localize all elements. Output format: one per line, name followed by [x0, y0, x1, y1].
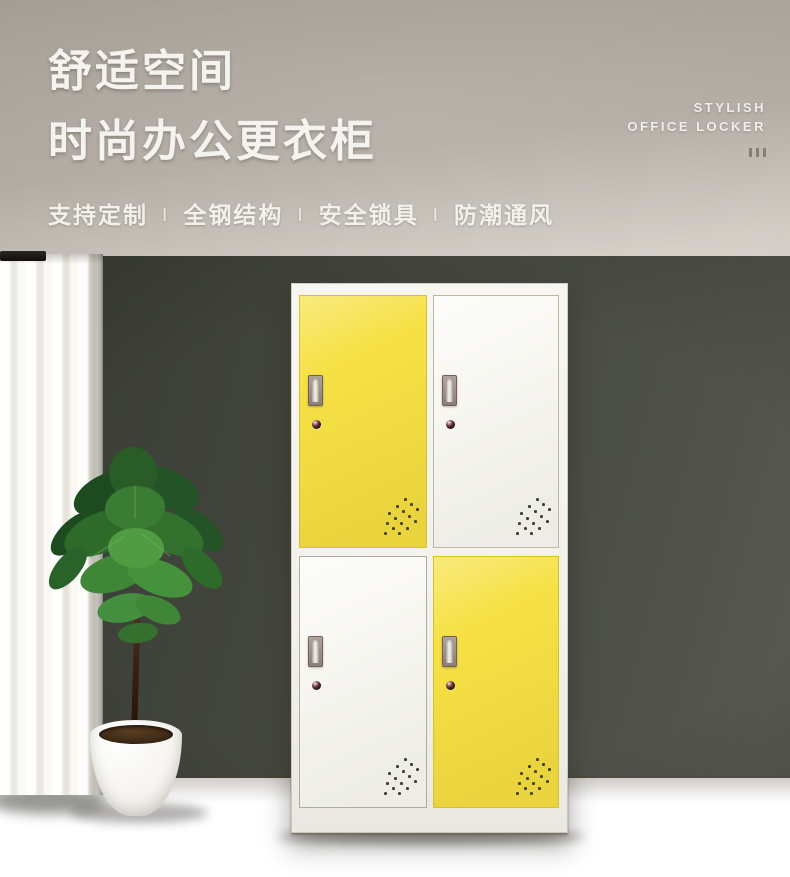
door-handle	[442, 636, 457, 667]
vent-hole	[536, 498, 539, 501]
vent-hole	[524, 527, 527, 530]
vent-hole	[542, 503, 545, 506]
door-handle	[308, 375, 323, 406]
vent-holes	[515, 498, 551, 538]
vent-hole	[406, 787, 409, 790]
vent-hole	[534, 770, 537, 773]
tagline-line2: OFFICE LOCKER	[627, 117, 766, 136]
vent-hole	[384, 532, 387, 535]
vent-hole	[530, 532, 533, 535]
vent-hole	[534, 510, 537, 513]
vent-hole	[416, 768, 419, 771]
vent-hole	[396, 505, 399, 508]
vent-holes	[383, 498, 419, 538]
vent-hole	[392, 527, 395, 530]
vent-hole	[516, 532, 519, 535]
vent-hole	[408, 775, 411, 778]
vent-hole	[406, 527, 409, 530]
vent-hole	[396, 765, 399, 768]
main-title-line2: 时尚办公更衣柜	[48, 120, 377, 164]
vent-hole	[410, 763, 413, 766]
vent-hole	[516, 792, 519, 795]
vent-hole	[398, 792, 401, 795]
vent-hole	[398, 532, 401, 535]
feature-item: 安全锁具	[319, 202, 419, 228]
vent-hole	[542, 763, 545, 766]
vent-hole	[404, 498, 407, 501]
door-lock-icon	[446, 681, 455, 690]
vent-hole	[400, 522, 403, 525]
vent-hole	[538, 527, 541, 530]
vent-hole	[538, 787, 541, 790]
vent-hole	[520, 772, 523, 775]
locker-door-bottom-right	[433, 556, 559, 808]
vent-hole	[524, 787, 527, 790]
vent-hole	[532, 782, 535, 785]
door-lock-icon	[312, 420, 321, 429]
vent-hole	[536, 758, 539, 761]
vent-hole	[540, 515, 543, 518]
locker-door-top-right	[433, 295, 559, 548]
vent-hole	[540, 775, 543, 778]
vent-hole	[546, 520, 549, 523]
vent-holes	[383, 758, 419, 798]
vent-hole	[404, 758, 407, 761]
tick-mark	[749, 148, 752, 157]
vent-hole	[386, 522, 389, 525]
tick-mark	[756, 148, 759, 157]
vent-hole	[526, 517, 529, 520]
vent-hole	[384, 792, 387, 795]
main-title-line1: 舒适空间	[48, 50, 236, 94]
vent-hole	[530, 792, 533, 795]
vent-hole	[546, 780, 549, 783]
vent-hole	[392, 787, 395, 790]
tagline-line1: STYLISH	[627, 98, 766, 117]
locker-door-top-left	[299, 295, 427, 548]
vent-hole	[528, 765, 531, 768]
feature-item: 防潮通风	[454, 202, 554, 228]
vent-hole	[402, 770, 405, 773]
feature-separator: Ⅰ	[433, 205, 440, 225]
handle-slot	[312, 379, 319, 402]
vent-hole	[386, 782, 389, 785]
handle-slot	[446, 640, 453, 663]
vent-hole	[548, 508, 551, 511]
tick-mark	[763, 148, 766, 157]
feature-item: 支持定制	[48, 202, 148, 228]
vent-holes	[515, 758, 551, 798]
vent-hole	[548, 768, 551, 771]
vent-hole	[394, 517, 397, 520]
vent-hole	[518, 782, 521, 785]
door-lock-icon	[446, 420, 455, 429]
vent-hole	[394, 777, 397, 780]
vent-hole	[526, 777, 529, 780]
vent-hole	[410, 503, 413, 506]
tick-marks	[749, 148, 766, 157]
vent-hole	[528, 505, 531, 508]
product-banner-scene: 舒适空间 时尚办公更衣柜 支持定制Ⅰ全钢结构Ⅰ安全锁具Ⅰ防潮通风 STYLISH…	[0, 0, 790, 877]
door-lock-icon	[312, 681, 321, 690]
vent-hole	[408, 515, 411, 518]
vent-hole	[414, 780, 417, 783]
feature-separator: Ⅰ	[297, 205, 304, 225]
feature-item: 全钢结构	[183, 202, 283, 228]
feature-list: 支持定制Ⅰ全钢结构Ⅰ安全锁具Ⅰ防潮通风	[48, 196, 554, 230]
pot-soil	[99, 725, 173, 744]
vent-hole	[520, 512, 523, 515]
vent-hole	[416, 508, 419, 511]
curtain-rod	[0, 251, 46, 261]
handle-slot	[446, 379, 453, 402]
locker-door-bottom-left	[299, 556, 427, 808]
english-tagline: STYLISH OFFICE LOCKER	[627, 98, 766, 136]
vent-hole	[402, 510, 405, 513]
feature-separator: Ⅰ	[162, 205, 169, 225]
vent-hole	[414, 520, 417, 523]
vent-hole	[518, 522, 521, 525]
handle-slot	[312, 640, 319, 663]
four-door-office-locker	[291, 283, 568, 833]
vent-hole	[532, 522, 535, 525]
vent-hole	[388, 772, 391, 775]
fiddle-leaf-fig-plant	[30, 438, 242, 656]
vent-hole	[388, 512, 391, 515]
door-handle	[308, 636, 323, 667]
vent-hole	[400, 782, 403, 785]
door-handle	[442, 375, 457, 406]
